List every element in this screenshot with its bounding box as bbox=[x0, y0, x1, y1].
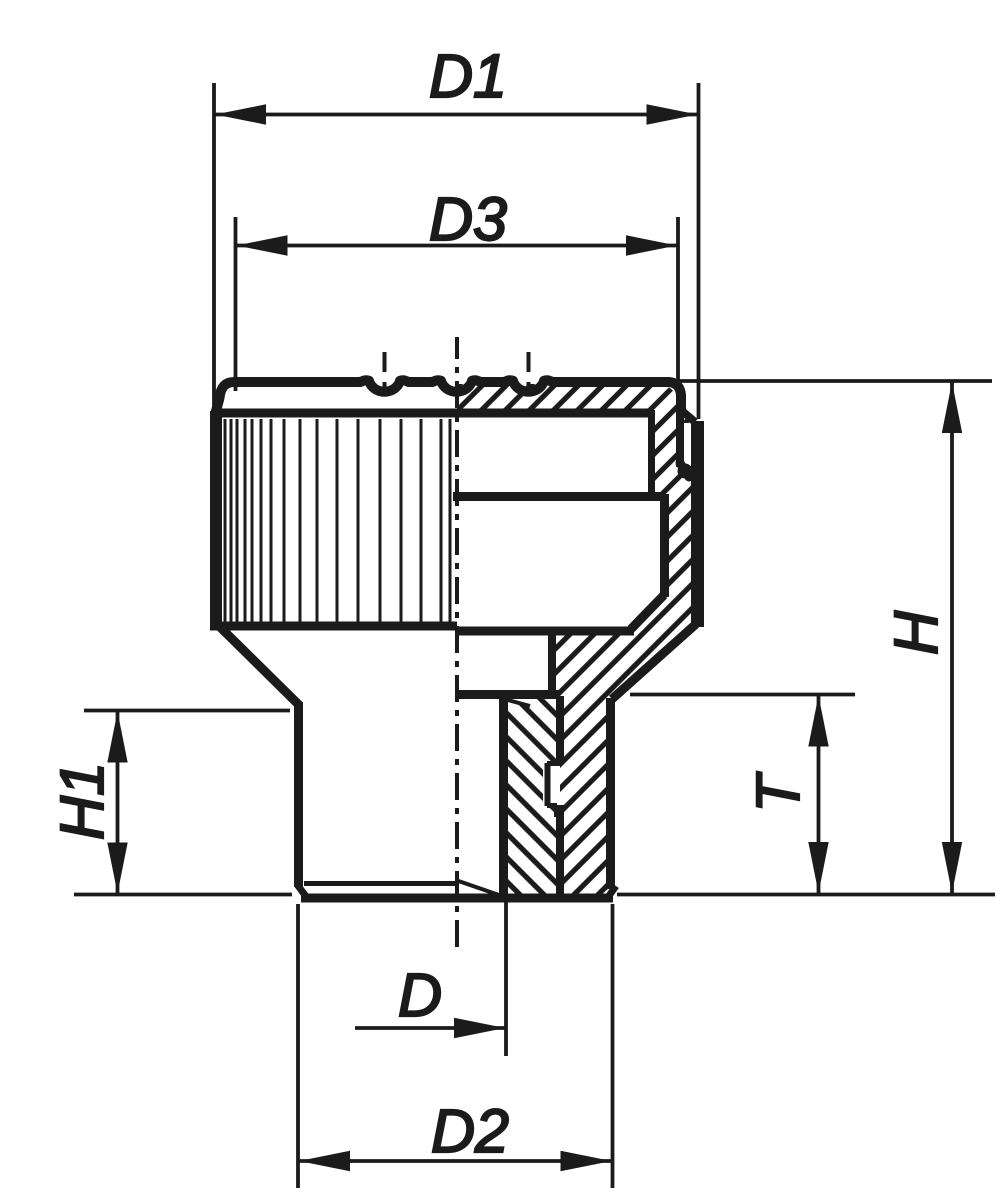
svg-text:H1: H1 bbox=[48, 762, 116, 840]
svg-text:T: T bbox=[744, 772, 812, 813]
svg-text:D: D bbox=[398, 961, 442, 1029]
svg-text:D2: D2 bbox=[431, 1097, 509, 1165]
svg-text:H: H bbox=[882, 610, 950, 655]
svg-text:D1: D1 bbox=[429, 42, 507, 110]
svg-text:D3: D3 bbox=[429, 185, 507, 253]
